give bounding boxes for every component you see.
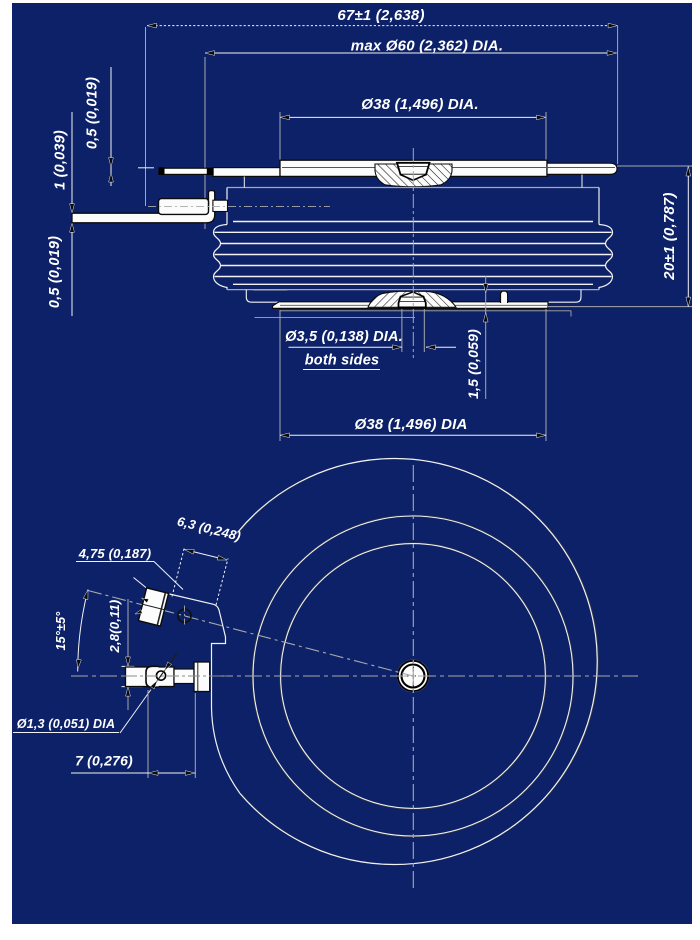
svg-text:4,75 (0,187): 4,75 (0,187): [78, 546, 152, 561]
svg-text:0,5 (0,019): 0,5 (0,019): [47, 236, 63, 308]
svg-text:1,5 (0,059): 1,5 (0,059): [465, 329, 481, 399]
svg-text:7 (0,276): 7 (0,276): [75, 753, 133, 769]
svg-text:Ø1,3 (0,051) DIA: Ø1,3 (0,051) DIA: [17, 717, 115, 731]
svg-text:0,5 (0,019): 0,5 (0,019): [85, 77, 101, 149]
svg-text:15°±5°: 15°±5°: [54, 611, 68, 651]
svg-text:Ø38 (1,496) DIA.: Ø38 (1,496) DIA.: [361, 96, 478, 113]
svg-text:Ø38 (1,496) DIA: Ø38 (1,496) DIA: [354, 416, 467, 433]
svg-text:1 (0,039): 1 (0,039): [53, 130, 69, 190]
svg-text:2,8(0,11): 2,8(0,11): [107, 600, 122, 654]
svg-text:Ø3,5 (0,138) DIA.: Ø3,5 (0,138) DIA.: [285, 329, 403, 345]
svg-text:max Ø60 (2,362) DIA.: max Ø60 (2,362) DIA.: [351, 38, 503, 55]
svg-text:67±1 (2,638): 67±1 (2,638): [337, 7, 424, 24]
svg-text:both sides: both sides: [305, 353, 380, 369]
svg-text:20±1 (0,787): 20±1 (0,787): [661, 192, 678, 280]
